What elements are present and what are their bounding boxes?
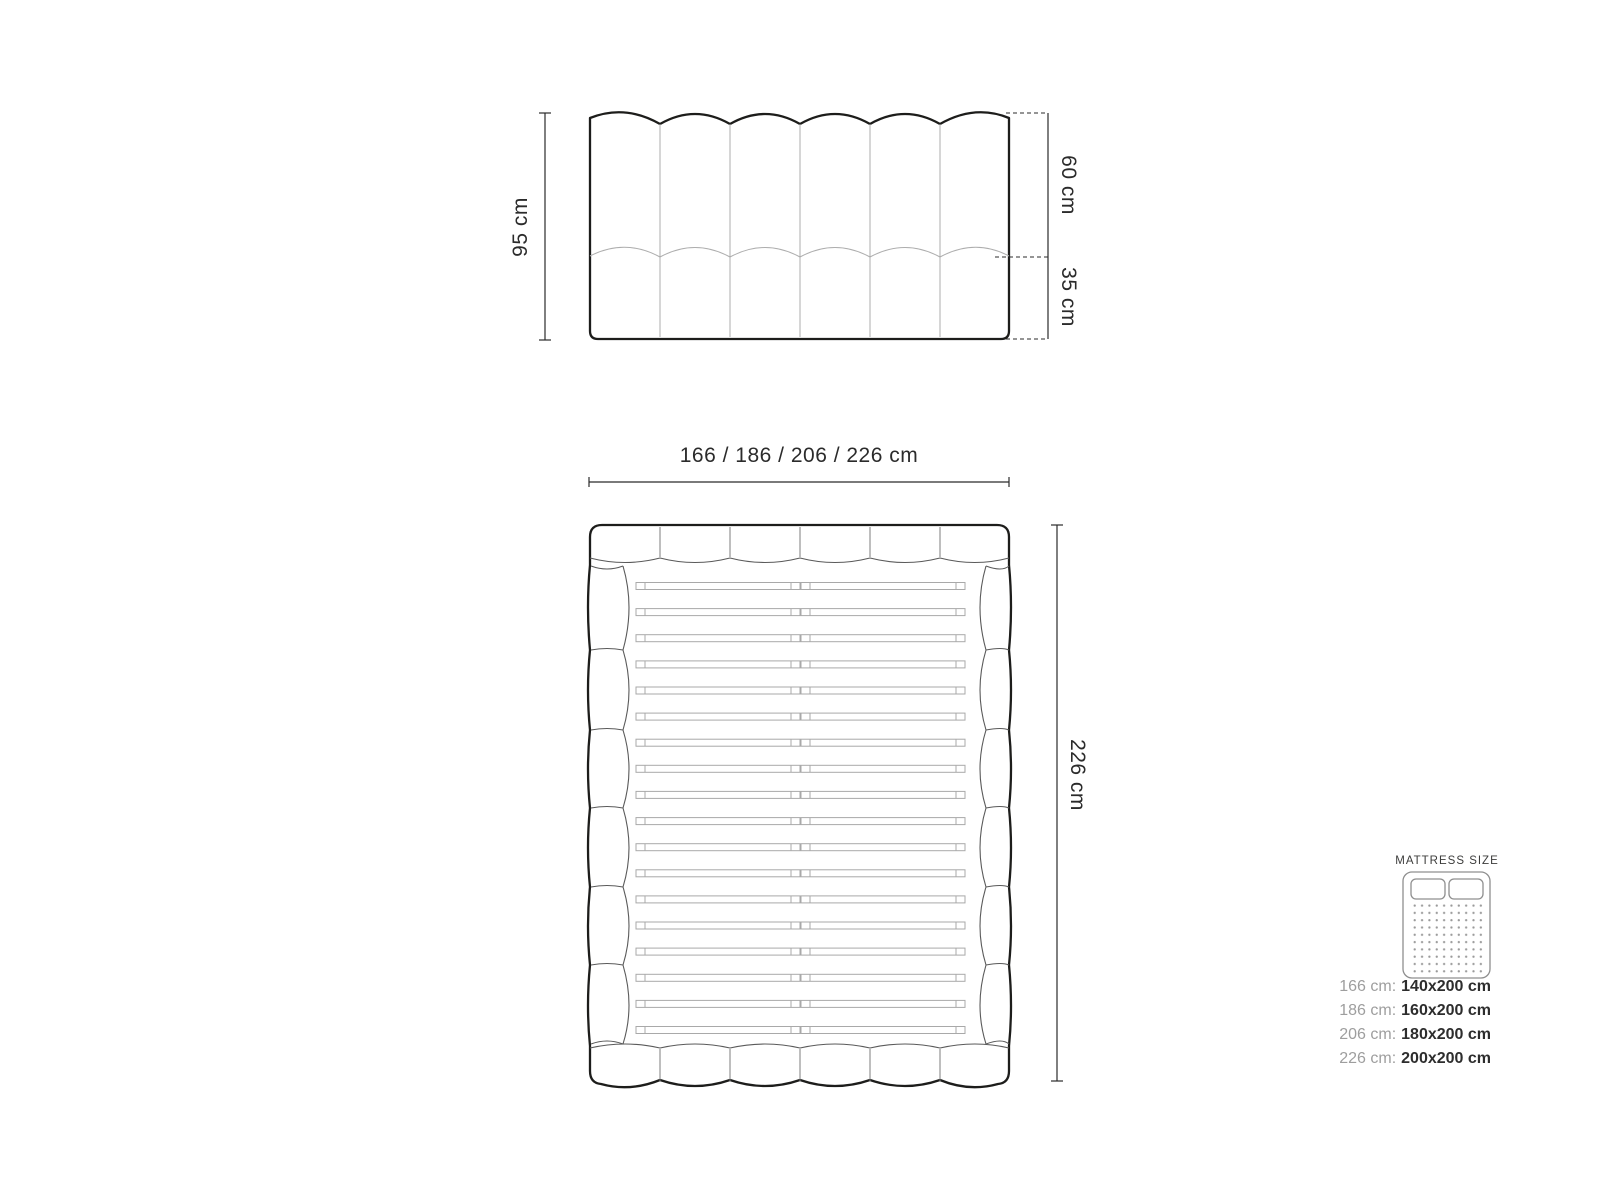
slat [801,687,965,694]
slat [636,765,800,772]
slat [636,948,800,955]
legend-row: 166 cm:140x200 cm [1339,978,1491,995]
height-dimension-label: 95 cm [509,197,532,257]
width-dimension-label: 166 / 186 / 206 / 226 cm [680,444,919,467]
slat [636,583,800,590]
slat [636,922,800,929]
mattress-dot-grid [1411,902,1485,975]
slat [801,635,965,642]
pillow-left [1411,879,1445,899]
mattress-size: 160x200 cm [1401,1002,1491,1019]
bed-dimension-diagram: 95 cm 60 cm 35 cm 166 / 186 / 206 / 226 … [0,0,1600,1200]
slat [801,739,965,746]
slat [801,844,965,851]
slat [636,1027,800,1034]
slat [801,1027,965,1034]
slat [636,896,800,903]
slat [636,687,800,694]
slat [636,818,800,825]
front-view: 95 cm 60 cm 35 cm [509,112,1080,340]
slat [801,948,965,955]
legend-row: 206 cm:180x200 cm [1339,1026,1491,1043]
slat [636,739,800,746]
frame-size: 166 cm: [1339,978,1396,995]
mattress-size: 140x200 cm [1401,978,1491,995]
top-view: 166 / 186 / 206 / 226 cm [588,444,1089,1087]
width-dimension: 166 / 186 / 206 / 226 cm [589,444,1009,487]
height-dimension: 95 cm [509,113,551,340]
legend-row: 186 cm:160x200 cm [1339,1002,1491,1019]
diagram-canvas: 95 cm 60 cm 35 cm 166 / 186 / 206 / 226 … [0,0,1600,1200]
mattress-size: 180x200 cm [1401,1026,1491,1043]
mattress-size-legend: MATTRESS SIZE 166 cm:140x200 cm 186 cm:1… [1339,855,1499,1067]
slat [801,713,965,720]
slat [636,974,800,981]
legend-row: 226 cm:200x200 cm [1339,1050,1491,1067]
slat [801,609,965,616]
base-height-label: 35 cm [1057,267,1080,327]
slat [801,765,965,772]
frame-size: 206 cm: [1339,1026,1396,1043]
slat [636,661,800,668]
slat [801,974,965,981]
legend-rows: 166 cm:140x200 cm 186 cm:160x200 cm 206 … [1339,978,1491,1067]
slat [636,844,800,851]
depth-dimension-label: 226 cm [1066,739,1089,811]
slat [801,818,965,825]
headboard-height-label: 60 cm [1057,155,1080,215]
frame-size: 226 cm: [1339,1050,1396,1067]
slat [801,791,965,798]
slat [636,635,800,642]
slat [801,661,965,668]
depth-dimension: 226 cm [1051,525,1089,1081]
frame-size: 186 cm: [1339,1002,1396,1019]
slat [801,1000,965,1007]
slat [801,870,965,877]
slat [636,870,800,877]
legend-title: MATTRESS SIZE [1395,855,1499,867]
slat [636,609,800,616]
slat [636,713,800,720]
mattress-size: 200x200 cm [1401,1050,1491,1067]
pillow-right [1449,879,1483,899]
slat [801,896,965,903]
slat [636,1000,800,1007]
slat [636,791,800,798]
slat [801,922,965,929]
slat [801,583,965,590]
mattress-icon [1403,872,1490,978]
